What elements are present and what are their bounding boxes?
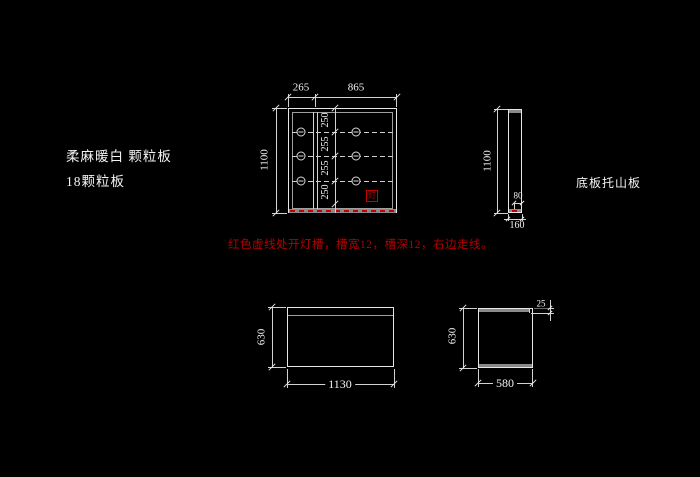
light-groove-dashed-line (290, 210, 395, 212)
dim-tick (529, 379, 536, 386)
corner-notch-dim: 25 (534, 300, 549, 309)
material-label-line1: 柔麻暖白 颗粒板 (66, 149, 172, 165)
side-groove-offset-dim: 80 (514, 192, 523, 201)
front-top-left-dim: 265 (293, 83, 310, 94)
material-label-line2: 18颗粒板 (66, 174, 125, 190)
side-depth-dim: 160 (510, 221, 525, 231)
shelf-drill-dashed-line (292, 181, 393, 182)
dim-line (497, 109, 498, 213)
dim-line (276, 108, 277, 213)
side-board-outline (478, 308, 533, 368)
shelf-drill-dashed-line (292, 156, 393, 157)
light-groove-note: 红色虚线处开灯槽，槽宽12，槽深12，右边走线。 (228, 240, 493, 252)
row-dim-label: 250 (321, 113, 331, 128)
row-dim-chain-line (335, 108, 336, 213)
side-height-dim: 1100 (483, 150, 494, 172)
front-divider-line-right (317, 112, 318, 209)
dim-tick (393, 93, 400, 100)
side-board-width-dim: 580 (493, 377, 517, 389)
hole-icon (297, 177, 306, 186)
side-board-bottom-edge-band (479, 364, 532, 367)
dim-line (272, 307, 273, 367)
hole-icon (352, 128, 361, 137)
row-dim-label: 255 (321, 137, 331, 152)
ext-line (514, 204, 515, 209)
row-dim-label: 255 (321, 161, 331, 176)
front-top-right-dim: 865 (348, 83, 365, 94)
top-board-height-dim: 630 (257, 329, 268, 346)
side-groove-red-mark (512, 210, 519, 212)
corner-notch-line (529, 308, 530, 313)
hole-icon (297, 128, 306, 137)
side-board-top-edge-band (479, 309, 529, 312)
front-divider-line-left (313, 112, 314, 209)
side-board-height-dim: 630 (448, 328, 459, 345)
shelf-drill-dashed-line (292, 132, 393, 133)
lamp-mark: 灯 (366, 190, 378, 202)
top-board-width-dim: 1130 (325, 378, 355, 390)
ext-line (394, 369, 395, 388)
row-dim-label: 250 (321, 185, 331, 200)
dim-line (288, 97, 397, 98)
ext-line (478, 369, 479, 387)
top-board-outline (287, 307, 394, 367)
side-panel-label: 底板托山板 (576, 176, 641, 190)
cad-drawing-canvas: 柔麻暖白 颗粒板 18颗粒板 灯 250 255 255 250 265 865… (0, 0, 700, 477)
hole-icon (352, 152, 361, 161)
front-height-dim: 1100 (260, 149, 271, 171)
top-board-inner-line (288, 315, 393, 316)
hole-icon (297, 152, 306, 161)
ext-line (287, 369, 288, 388)
side-top-edge-band (509, 110, 521, 113)
hole-icon (352, 177, 361, 186)
dim-line (463, 308, 464, 368)
